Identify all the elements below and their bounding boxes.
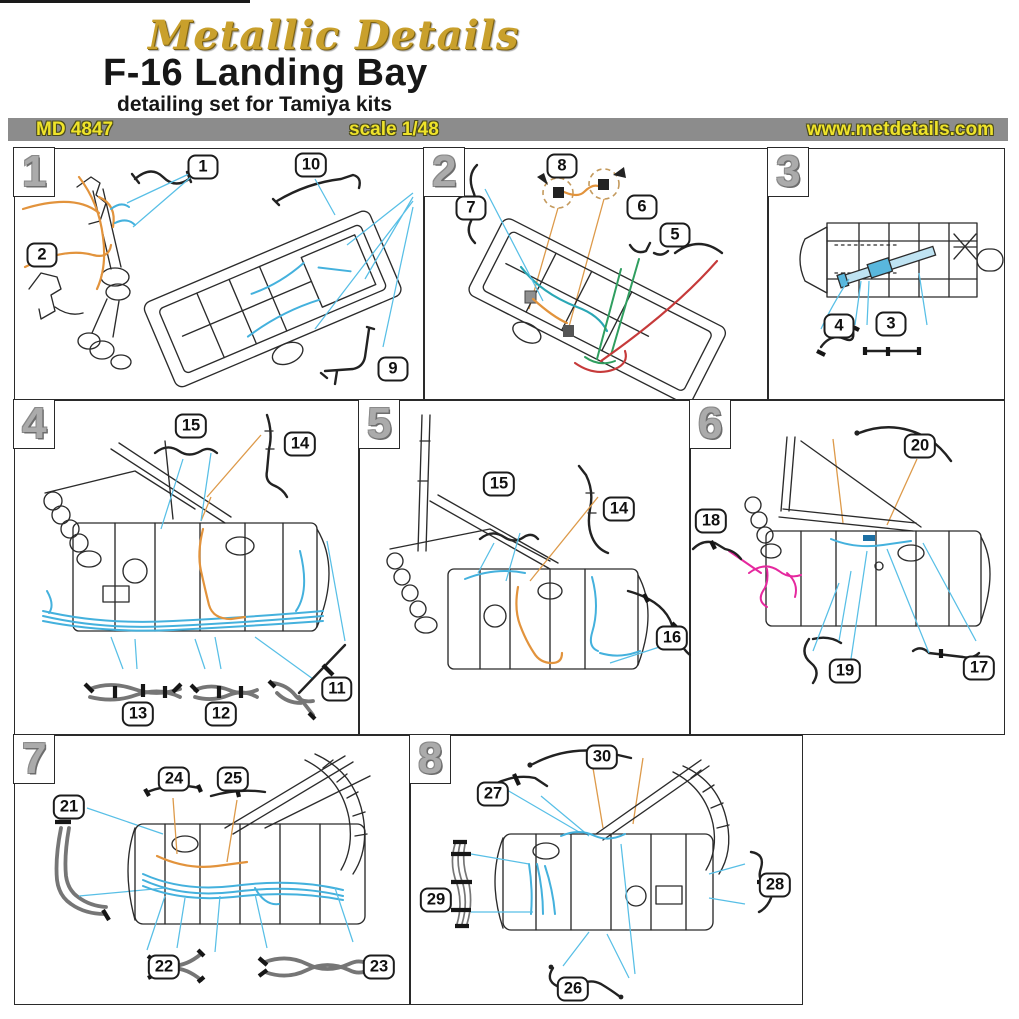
step-number-box: 4 xyxy=(13,399,55,449)
callout-part-6: 6 xyxy=(627,195,658,220)
step-number: 5 xyxy=(367,402,391,446)
step-panel-2: 2 8 7 6 5 xyxy=(424,148,768,400)
callout-part-14: 14 xyxy=(284,432,316,457)
callout-part-20: 20 xyxy=(904,434,936,459)
callout-part-4: 4 xyxy=(824,314,855,339)
callout-part-18: 18 xyxy=(695,509,727,534)
step-number-box: 3 xyxy=(767,147,809,197)
step-number-box: 6 xyxy=(689,399,731,449)
callout-part-12: 12 xyxy=(205,702,237,727)
callout-part-24: 24 xyxy=(158,767,190,792)
callout-part-14: 14 xyxy=(603,497,635,522)
callout-part-22: 22 xyxy=(148,955,180,980)
scale-label: scale 1/48 xyxy=(349,118,439,141)
callout-part-16: 16 xyxy=(656,626,688,651)
step-7-drawing xyxy=(15,736,411,1006)
page-subtitle: detailing set for Tamiya kits xyxy=(117,93,392,117)
callout-part-9: 9 xyxy=(378,357,409,382)
callout-part-27: 27 xyxy=(477,782,509,807)
step-number-box: 8 xyxy=(409,734,451,784)
callout-part-28: 28 xyxy=(759,873,791,898)
step-panel-5: 5 15 14 16 xyxy=(359,400,690,735)
scan-artifact-bar xyxy=(0,0,250,3)
callout-part-11: 11 xyxy=(321,677,352,702)
callout-part-19: 19 xyxy=(829,659,861,684)
website-link: www.metdetails.com xyxy=(807,118,994,141)
step-number-box: 7 xyxy=(13,734,55,784)
step-number: 3 xyxy=(776,150,800,194)
callout-part-15: 15 xyxy=(483,472,515,497)
step-number: 8 xyxy=(418,737,442,781)
step-number: 6 xyxy=(698,402,722,446)
step-panel-3: 3 4 3 xyxy=(768,148,1005,400)
product-code: MD 4847 xyxy=(36,118,113,141)
step-6-drawing xyxy=(691,401,1006,736)
step-number-box: 5 xyxy=(358,399,400,449)
callout-part-10: 10 xyxy=(295,153,327,178)
callout-part-8: 8 xyxy=(547,154,578,179)
step-number-box: 2 xyxy=(423,147,465,197)
step-number-box: 1 xyxy=(13,147,55,197)
callout-part-29: 29 xyxy=(420,888,452,913)
step-panel-7: 7 24 25 21 22 23 xyxy=(14,735,410,1005)
step-number: 4 xyxy=(22,402,46,446)
callout-part-3: 3 xyxy=(876,312,907,337)
callout-part-21: 21 xyxy=(53,795,85,820)
step-5-drawing xyxy=(360,401,691,736)
callout-part-25: 25 xyxy=(217,767,249,792)
callout-part-30: 30 xyxy=(586,745,618,770)
callout-part-23: 23 xyxy=(363,955,395,980)
step-number: 1 xyxy=(22,150,46,194)
callout-part-13: 13 xyxy=(122,702,154,727)
step-number: 7 xyxy=(22,737,46,781)
step-panel-8: 8 30 27 29 28 26 xyxy=(410,735,803,1005)
callout-part-7: 7 xyxy=(456,196,487,221)
step-number: 2 xyxy=(432,150,456,194)
info-bar: MD 4847 scale 1/48 www.metdetails.com xyxy=(8,118,1008,141)
callout-part-26: 26 xyxy=(557,977,589,1002)
callout-part-17: 17 xyxy=(963,656,995,681)
step-8-drawing xyxy=(411,736,804,1006)
callout-part-2: 2 xyxy=(27,243,58,268)
callout-part-1: 1 xyxy=(188,155,219,180)
instruction-sheet: Metallic Details F-16 Landing Bay detail… xyxy=(0,0,1019,1019)
page-title: F-16 Landing Bay xyxy=(103,52,428,95)
step-panel-6: 6 20 18 19 17 xyxy=(690,400,1005,735)
callout-part-5: 5 xyxy=(660,223,691,248)
step-panel-4: 4 15 14 11 13 12 xyxy=(14,400,359,735)
step-panel-1: 1 1 10 2 9 xyxy=(14,148,424,400)
step-1-drawing xyxy=(15,149,425,401)
callout-part-15: 15 xyxy=(175,414,207,439)
step-2-drawing xyxy=(425,149,769,401)
